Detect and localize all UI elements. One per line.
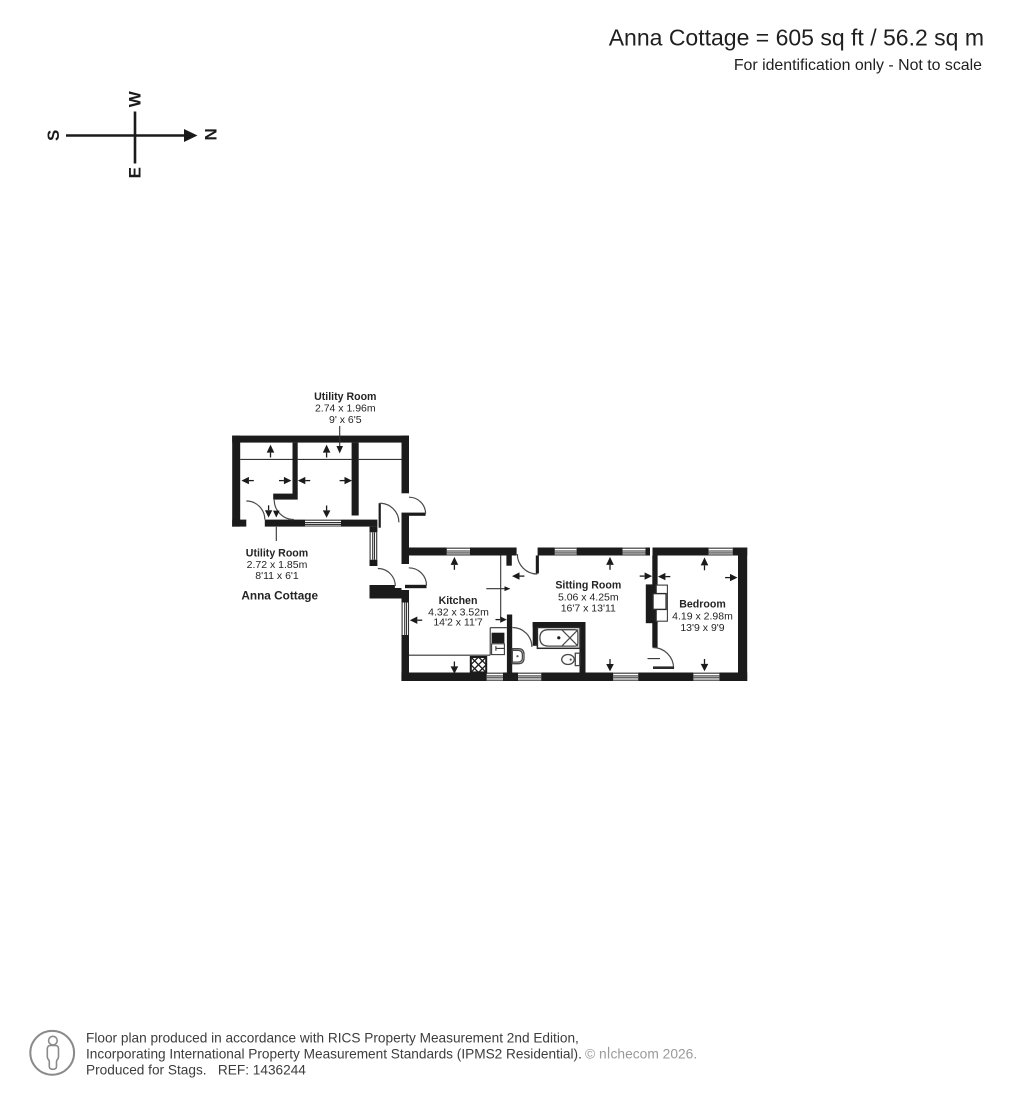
svg-text:8'11 x 6'1: 8'11 x 6'1	[255, 570, 299, 582]
svg-text:14'2 x 11'7: 14'2 x 11'7	[433, 617, 483, 629]
svg-text:2.74 x 1.96m: 2.74 x 1.96m	[315, 403, 376, 415]
svg-text:For identification only - Not: For identification only - Not to scale	[734, 57, 982, 74]
svg-text:Bedroom: Bedroom	[679, 599, 726, 611]
svg-text:16'7 x 13'11: 16'7 x 13'11	[561, 603, 616, 615]
svg-text:Produced for Stags. REF: 143: Produced for Stags. REF: 1436244	[86, 1063, 306, 1078]
svg-text:Incorporating International Pr: Incorporating International Property Mea…	[86, 1046, 582, 1061]
svg-text:13'9 x 9'9: 13'9 x 9'9	[680, 622, 724, 634]
svg-text:W: W	[126, 90, 145, 107]
svg-text:S: S	[44, 130, 63, 141]
svg-text:Sitting Room: Sitting Room	[555, 580, 621, 592]
svg-text:Kitchen: Kitchen	[439, 595, 478, 607]
svg-text:© nıchecom 2026.: © nıchecom 2026.	[585, 1046, 697, 1061]
svg-text:2.72 x 1.85m: 2.72 x 1.85m	[247, 559, 308, 571]
svg-text:Floor plan produced in accorda: Floor plan produced in accordance with R…	[86, 1030, 579, 1045]
svg-text:Utility Room: Utility Room	[314, 391, 376, 403]
svg-text:Anna Cottage: Anna Cottage	[241, 589, 318, 603]
svg-text:9' x 6'5: 9' x 6'5	[329, 414, 362, 426]
svg-text:N: N	[201, 128, 220, 140]
svg-text:5.06 x 4.25m: 5.06 x 4.25m	[558, 591, 619, 603]
svg-text:Anna Cottage = 605 sq ft / 56.: Anna Cottage = 605 sq ft / 56.2 sq m	[609, 25, 984, 51]
svg-text:Utility Room: Utility Room	[246, 548, 308, 560]
svg-text:4.19 x 2.98m: 4.19 x 2.98m	[672, 610, 733, 622]
svg-text:E: E	[126, 167, 145, 178]
